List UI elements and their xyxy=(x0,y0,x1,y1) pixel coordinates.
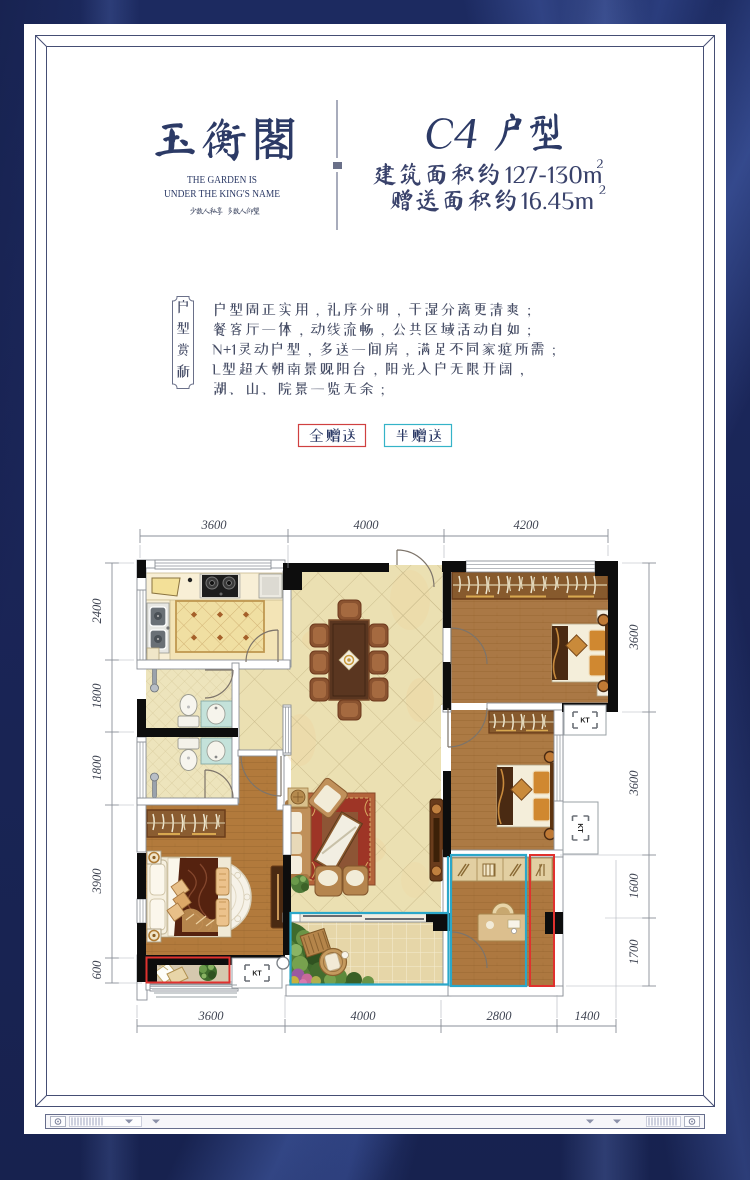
svg-text:THE GARDEN IS: THE GARDEN IS xyxy=(187,174,257,186)
svg-text:3600: 3600 xyxy=(627,624,641,651)
svg-text:KT: KT xyxy=(576,823,583,833)
svg-text:1400: 1400 xyxy=(575,1009,601,1023)
svg-text:KT: KT xyxy=(580,718,590,725)
svg-text:4000: 4000 xyxy=(351,1009,377,1023)
svg-text:UNDER THE KING'S NAME: UNDER THE KING'S NAME xyxy=(164,188,280,200)
svg-text:3600: 3600 xyxy=(201,518,228,532)
svg-text:4000: 4000 xyxy=(354,518,380,532)
svg-text:3600: 3600 xyxy=(198,1009,225,1023)
svg-text:4200: 4200 xyxy=(514,518,540,532)
svg-text:1800: 1800 xyxy=(90,755,104,781)
svg-text:1800: 1800 xyxy=(90,683,104,709)
svg-text:KT: KT xyxy=(252,971,262,978)
svg-text:1600: 1600 xyxy=(627,873,641,899)
svg-text:2800: 2800 xyxy=(487,1009,513,1023)
svg-text:2400: 2400 xyxy=(90,598,104,624)
svg-text:1700: 1700 xyxy=(627,939,641,965)
svg-text:3600: 3600 xyxy=(627,770,641,797)
svg-text:3900: 3900 xyxy=(90,868,104,895)
svg-text:600: 600 xyxy=(90,960,104,980)
